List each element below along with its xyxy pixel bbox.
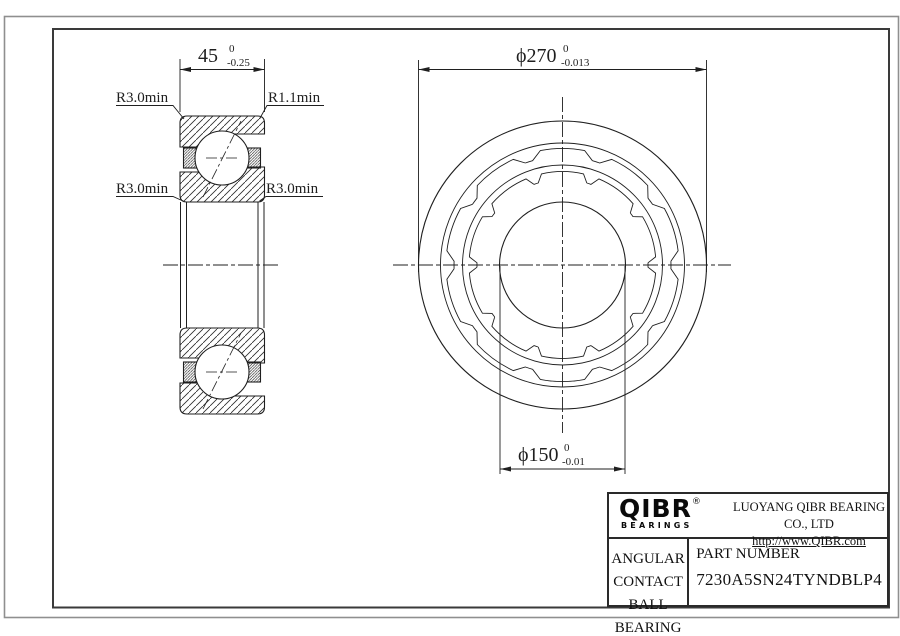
arrow-left — [500, 467, 511, 472]
front-view: ϕ270 0 -0.013 ϕ150 0 -0.01 — [393, 43, 731, 474]
bearing-section-bottom — [180, 328, 265, 414]
dim-bore-dia-value: ϕ150 — [518, 444, 559, 466]
arrow-right — [254, 67, 265, 72]
product-type-line2: BALL BEARING — [609, 594, 687, 636]
company-info: LUOYANG QIBR BEARING CO., LTD http://www… — [731, 494, 887, 537]
registered-trademark-icon: ® — [692, 497, 701, 507]
drawing-sheet: 45 0 -0.25 R3.0min R1.1min R3.0min R3.0m… — [0, 0, 900, 636]
product-type-cell: ANGULAR CONTACT BALL BEARING — [609, 539, 689, 605]
title-block-detail-row: ANGULAR CONTACT BALL BEARING PART NUMBER… — [609, 539, 887, 605]
label-r-bottom-left: R3.0min — [116, 181, 169, 197]
title-block-header-row: QIBR® BEARINGS LUOYANG QIBR BEARING CO.,… — [609, 494, 887, 539]
dim-width-tol-upper: 0 — [229, 43, 235, 55]
dim-outer-dia-value: ϕ270 — [516, 45, 557, 67]
section-view: 45 0 -0.25 R3.0min R1.1min R3.0min R3.0m… — [116, 43, 324, 414]
arrow-left — [180, 67, 191, 72]
dim-outer-dia-tol-upper: 0 — [563, 43, 569, 55]
arrow-right — [614, 467, 625, 472]
title-block: QIBR® BEARINGS LUOYANG QIBR BEARING CO.,… — [607, 492, 889, 607]
dim-bore-dia-tol-lower: -0.01 — [562, 456, 585, 468]
part-number-value: 7230A5SN24TYNDBLP4 — [696, 570, 882, 590]
label-r-top-right: R1.1min — [268, 90, 321, 106]
dim-width-value: 45 — [198, 45, 218, 67]
arrow-right — [696, 67, 707, 72]
company-name: LUOYANG QIBR BEARING CO., LTD — [731, 499, 887, 533]
product-type-line1: ANGULAR CONTACT — [609, 548, 687, 594]
dimension-width — [180, 59, 265, 112]
bearing-section-top — [180, 116, 265, 202]
logo-subtext: BEARINGS — [621, 521, 731, 530]
label-r-bottom-right: R3.0min — [266, 181, 319, 197]
logo-text: QIBR — [619, 494, 692, 523]
part-number-cell: PART NUMBER 7230A5SN24TYNDBLP4 — [689, 539, 887, 605]
arrow-left — [419, 67, 430, 72]
dim-width-tol-lower: -0.25 — [227, 57, 250, 69]
dim-outer-dia-tol-lower: -0.013 — [561, 57, 590, 69]
label-r-top-left: R3.0min — [116, 90, 169, 106]
part-number-label: PART NUMBER — [696, 546, 882, 563]
company-logo: QIBR® BEARINGS — [609, 494, 731, 537]
dim-bore-dia-tol-upper: 0 — [564, 442, 570, 454]
